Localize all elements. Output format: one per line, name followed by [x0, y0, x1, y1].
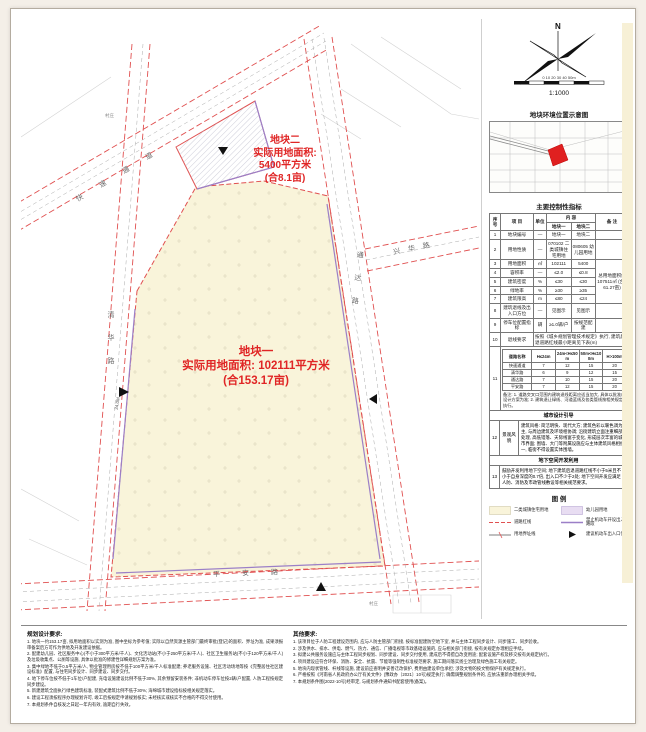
cell-item: 建筑限高: [501, 295, 534, 304]
design-no: 12: [490, 421, 500, 455]
control-indicators-table: 序号 项 目 单位 内 容 备 注 地块一 地块二 1 地块编号 — 地块一 地…: [489, 213, 629, 411]
cell-p1: 102111: [547, 260, 572, 269]
cell-p1: ≤30: [547, 277, 572, 286]
scale-text: 1:1000: [549, 90, 569, 97]
setback-value: 9: [555, 369, 579, 376]
cell-setback-table: 道路名称 H≤24m 24m<H≤50m 50m<H≤100m H>100m 快…: [501, 347, 629, 411]
cell-p1: ≥1.0辆/户: [547, 318, 572, 332]
legend-item-entrance: 建议机动车出入口位置: [561, 530, 629, 539]
underground-no: 13: [490, 466, 500, 488]
cell-p1: 地块一: [547, 231, 572, 240]
table-row: 1 地块编号 — 地块一 地块二: [490, 231, 629, 240]
cell-item: 地块编号: [501, 231, 534, 240]
note-item: 7. 本规划条件自核发之日起一年内有效, 逾期自行失效。: [27, 702, 283, 708]
setback-value: 7: [532, 376, 556, 383]
kindergarten-swatch-icon: [561, 506, 583, 515]
setback-value: 7: [532, 362, 556, 369]
cell-p2: 见图示: [571, 304, 596, 318]
legend-label: 幼儿园用地: [586, 508, 607, 513]
cell-no: 3: [490, 260, 501, 269]
note-item: 4. 项目建设应符合环保、消防、安全、抗震、节能等强制性标准规范要求, 施工期间…: [293, 659, 623, 665]
other-requirements: 其他要求: 1. 该项目位于人防工程建设范围内, 应与人防主管部门衔接, 按标准…: [293, 630, 623, 686]
note-item: 5. 新建建筑全面执行绿色建筑标准, 装配式建筑比例不低于30%; 海绵城市建设…: [27, 688, 283, 694]
cell-no: 2: [490, 240, 501, 260]
setback-value: 7: [532, 383, 556, 390]
setback-road: 清华路: [503, 369, 532, 376]
cell-item: 用地性质: [501, 240, 534, 260]
setback-note: 备注: 1. 道路交叉口范围内建筑退线距离应适当加大, 具体以批准的设计方案为准…: [502, 391, 627, 409]
cell-p1: 见图示: [547, 304, 572, 318]
cell-no: 1: [490, 231, 501, 240]
legend-item-boundary: 用地界址线: [489, 530, 557, 539]
table-row: 8 建筑退线及出入口方位 — 见图示 见图示: [490, 304, 629, 318]
cell-p2: ≤24: [571, 295, 596, 304]
legend: 二类城镇住宅用地 幼儿园用地 道路红线 禁止机动车开设出入口路段 用地界址线: [489, 506, 629, 540]
legend-item-no-access: 禁止机动车开设出入口路段: [561, 518, 629, 528]
setback-col-2: 24m<H≤50m: [555, 350, 579, 362]
legend-label: 道路红线: [514, 520, 531, 525]
cell-unit: —: [534, 304, 547, 318]
setback-value: 15: [579, 362, 603, 369]
parcel2-area-label: 实际用地面积:: [217, 148, 353, 161]
cell-p2: ≤30: [571, 277, 596, 286]
cell-no: 6: [490, 286, 501, 295]
control-table-block: 主要控制性指标 序号 项 目 单位 内 容 备 注 地块一 地块二 1 地块编号…: [489, 201, 629, 539]
note-item: 3. 拟建公共服务设施应与主体工程同步规划、同步建设、同步交付使用, 建成后不得…: [293, 652, 623, 658]
scale-bar: [514, 81, 604, 85]
setback-col-3: 50m<H≤100m: [579, 350, 603, 362]
boundary-line-icon: [489, 530, 511, 539]
plan-sheet: 快速通道 清华路 通达路 平安路 兴华路 村庄 村庄 24.0M 地块二 实际用…: [10, 8, 636, 724]
cell-setback-rule: 按照《城乡规划管理技术规定》执行, 建筑后退道路红线最小距离见下表(m): [534, 333, 629, 347]
cell-no: 7: [490, 295, 501, 304]
col-parcel1: 地块一: [547, 222, 572, 231]
cell-no: 4: [490, 269, 501, 278]
setback-road: 快速通道: [503, 362, 532, 369]
scale-ticks: 0 10 20 30 40 50m: [542, 75, 576, 80]
design-section-row: 12 景观风貌 建筑风格: 简洁明快、现代大方; 建筑色彩以暖色调为主, 与周边…: [489, 421, 628, 456]
parcel2-annotation: 地块二 实际用地面积: 5400平方米 (合8.1亩): [217, 135, 353, 185]
setback-value: 12: [579, 369, 603, 376]
parcel1-title: 地块一: [131, 345, 381, 359]
cell-item: 用地面积: [501, 260, 534, 269]
note-item: 2. 涉及供水、排水、供电、燃气、热力、通信、广播电视等市政基础设施的, 应与相…: [293, 646, 623, 652]
cell-item: 绿地率: [501, 286, 534, 295]
cell-no: 5: [490, 277, 501, 286]
table-row-setback: 11 道路名称 H≤24m 24m<H≤50m 50m<H≤100m H>100…: [490, 347, 629, 411]
cell-unit: —: [534, 240, 547, 260]
cell-p2: 地块二: [571, 231, 596, 240]
table-row: 9 停车位配置指标 辆 ≥1.0辆/户 按规范配建: [490, 318, 629, 332]
col-unit: 单位: [534, 214, 547, 231]
road-label-qinghua: 清华路: [105, 311, 115, 380]
residential-swatch-icon: [489, 506, 511, 515]
parcel1-annotation: 地块一 实际用地面积: 102111平方米 (合153.17亩): [131, 345, 381, 388]
design-label: 景观风貌: [500, 421, 519, 455]
setback-road: 平安路: [503, 383, 532, 390]
legend-label: 用地界址线: [514, 532, 535, 537]
cell-p1: ≤2.0: [547, 269, 572, 278]
cell-p2: 按规范配建: [571, 318, 596, 332]
parcel2-area-mu: (合8.1亩): [217, 173, 353, 186]
setback-row: 平安路 7 12 15 20: [503, 383, 627, 390]
location-minimap: [489, 121, 629, 193]
setback-row: 清华路 6 9 12 15: [503, 369, 627, 376]
cell-no: 11: [490, 347, 501, 411]
note-item: 6. 建设工程须按程序办理规划许可, 竣工后按规定申请规划核实; 未经核实或核实…: [27, 695, 283, 701]
cell-item: 停车位配置指标: [501, 318, 534, 332]
setback-value: 6: [532, 369, 556, 376]
redline-icon: [489, 518, 511, 527]
cell-unit: %: [534, 277, 547, 286]
cell-unit: 辆: [534, 318, 547, 332]
parcel1-area-mu: (合153.17亩): [131, 374, 381, 388]
table-header-row: 序号 项 目 单位 内 容 备 注: [490, 214, 629, 223]
legend-label: 二类城镇住宅用地: [514, 508, 548, 513]
cell-unit: %: [534, 286, 547, 295]
parcel1-area-value: 实际用地面积: 102111平方米: [131, 359, 381, 373]
underground-text: 鼓励开发利用地下空间; 地下建筑后退道路红线不小于5米且不小于自身深度的0.7倍…: [500, 466, 627, 488]
parcel2-title: 地块二: [217, 135, 353, 148]
setback-value: 15: [579, 383, 603, 390]
info-panel: N 0 10 20 30 40 50m 1:1000: [481, 19, 632, 619]
north-letter: N: [555, 22, 561, 31]
village-label-1: 村庄: [105, 113, 114, 119]
underground-section-title: 地下空间开发利用: [489, 456, 628, 466]
location-title: 地块环境位置示意图: [489, 109, 629, 119]
legend-item-residential: 二类城镇住宅用地: [489, 506, 557, 515]
note-item: 1. 地块一约153.17亩, 拟用地面积以实测为准, 图中坐标为参考值; 实际…: [27, 639, 283, 650]
col-parcel2: 地块二: [571, 222, 596, 231]
location-block: 地块环境位置示意图: [489, 109, 629, 198]
note-item: 5. 地块内现状管线、杆线等设施, 建设前应查明并妥善迁改保护, 费用由建设单位…: [293, 666, 623, 672]
cell-unit: m: [534, 295, 547, 304]
design-text: 建筑风格: 简洁明快、现代大方; 建筑色彩以暖色调为主, 与周边建筑及环境相协调…: [519, 421, 627, 455]
cell-item: 退线要求: [501, 333, 534, 347]
parcel2-area-value: 5400平方米: [217, 160, 353, 173]
cell-unit: ㎡: [534, 260, 547, 269]
notes-area: 规划设计要求: 1. 地块一约153.17亩, 拟用地面积以实测为准, 图中坐标…: [21, 625, 627, 723]
setback-header-row: 道路名称 H≤24m 24m<H≤50m 50m<H≤100m H>100m: [503, 350, 627, 362]
setback-col-road: 道路名称: [503, 350, 532, 362]
cell-p1: 070102 二类城镇住宅用地: [547, 240, 572, 260]
compass-icon: N 0 10 20 30 40 50m 1:1000: [489, 19, 629, 101]
site-plan-map: 快速通道 清华路 通达路 平安路 兴华路 村庄 村庄 24.0M 地块二 实际用…: [21, 19, 479, 619]
note-item: 4. 地下停车位按不低于1车位/户配建, 充电设施建设比例不低于30%, 其余预…: [27, 676, 283, 687]
table-row: 3 用地面积 ㎡ 102111 5400 总用地面积约107511㎡ (合161…: [490, 260, 629, 269]
note-item: 6. 严格按照《河南省人民政府办公厅有关文件》(豫政办〔2021〕10号)规定执…: [293, 672, 623, 678]
note-item: 2. 配建幼儿园、社区服务中心(不小于300平方米/千人)、文化活动站(不小于2…: [27, 651, 283, 662]
setback-value: 10: [555, 376, 579, 383]
cell-item: 建筑退线及出入口方位: [501, 304, 534, 318]
setback-row: 快速通道 7 12 15 20: [503, 362, 627, 369]
cell-item: 建筑密度: [501, 277, 534, 286]
col-item: 项 目: [501, 214, 534, 231]
col-no: 序号: [490, 214, 501, 231]
cell-p2: 5400: [571, 260, 596, 269]
table-row: 2 用地性质 — 070102 二类城镇住宅用地 080605 幼儿园用地: [490, 240, 629, 260]
cell-unit: —: [534, 231, 547, 240]
cell-p1: ≥30: [547, 286, 572, 295]
other-requirements-title: 其他要求:: [293, 630, 623, 638]
setback-value: 12: [555, 383, 579, 390]
cell-p2: ≤0.8: [571, 269, 596, 278]
note-item: 1. 该项目位于人防工程建设范围内, 应与人防主管部门衔接, 按标准配建防空地下…: [293, 639, 623, 645]
cell-item: 容积率: [501, 269, 534, 278]
setback-value: 15: [579, 376, 603, 383]
underground-section-row: 13 鼓励开发利用地下空间; 地下建筑后退道路红线不小于5米且不小于自身深度的0…: [489, 466, 628, 489]
note-item: 7. 本规划条件图(2022-10号)经审定, 与规划条件通知书配套使用(备案)…: [293, 679, 623, 685]
cell-no: 8: [490, 304, 501, 318]
note-item: 3. 集中绿地不低于0.5平方米/人, 物业管理用房按不低于100平方米/千人标…: [27, 664, 283, 675]
col-content: 内 容: [547, 214, 596, 223]
table-title: 主要控制性指标: [489, 201, 629, 211]
compass-block: N 0 10 20 30 40 50m 1:1000: [489, 19, 629, 106]
site-plan-svg: [21, 19, 479, 619]
cell-unit: —: [534, 269, 547, 278]
entrance-triangle-icon: [561, 530, 583, 539]
table-row: 10 退线要求 按照《城乡规划管理技术规定》执行, 建筑后退道路红线最小距离见下…: [490, 333, 629, 347]
planning-requirements: 规划设计要求: 1. 地块一约153.17亩, 拟用地面积以实测为准, 图中坐标…: [27, 630, 283, 708]
cell-p2: ≥35: [571, 286, 596, 295]
cell-p1: ≤80: [547, 295, 572, 304]
cell-no: 9: [490, 318, 501, 332]
setback-sub-table: 道路名称 H≤24m 24m<H≤50m 50m<H≤100m H>100m 快…: [502, 349, 627, 390]
design-section-title: 城市设计引导: [489, 411, 628, 421]
legend-item-redline: 道路红线: [489, 518, 557, 528]
setback-value: 12: [555, 362, 579, 369]
legend-item-kindergarten: 幼儿园用地: [561, 506, 629, 515]
cell-no: 10: [490, 333, 501, 347]
planning-requirements-title: 规划设计要求:: [27, 630, 283, 638]
village-label-2: 村庄: [369, 601, 378, 607]
setback-col-1: H≤24m: [532, 350, 556, 362]
setback-row: 通达路 7 10 15 20: [503, 376, 627, 383]
right-margin-strip: [622, 23, 633, 583]
legend-title: 图 例: [489, 493, 629, 503]
setback-road: 通达路: [503, 376, 532, 383]
no-access-line-icon: [561, 518, 583, 527]
cell-p2: 080605 幼儿园用地: [571, 240, 596, 260]
minimap-site-marker: [548, 144, 568, 166]
railway-line: [490, 136, 552, 155]
